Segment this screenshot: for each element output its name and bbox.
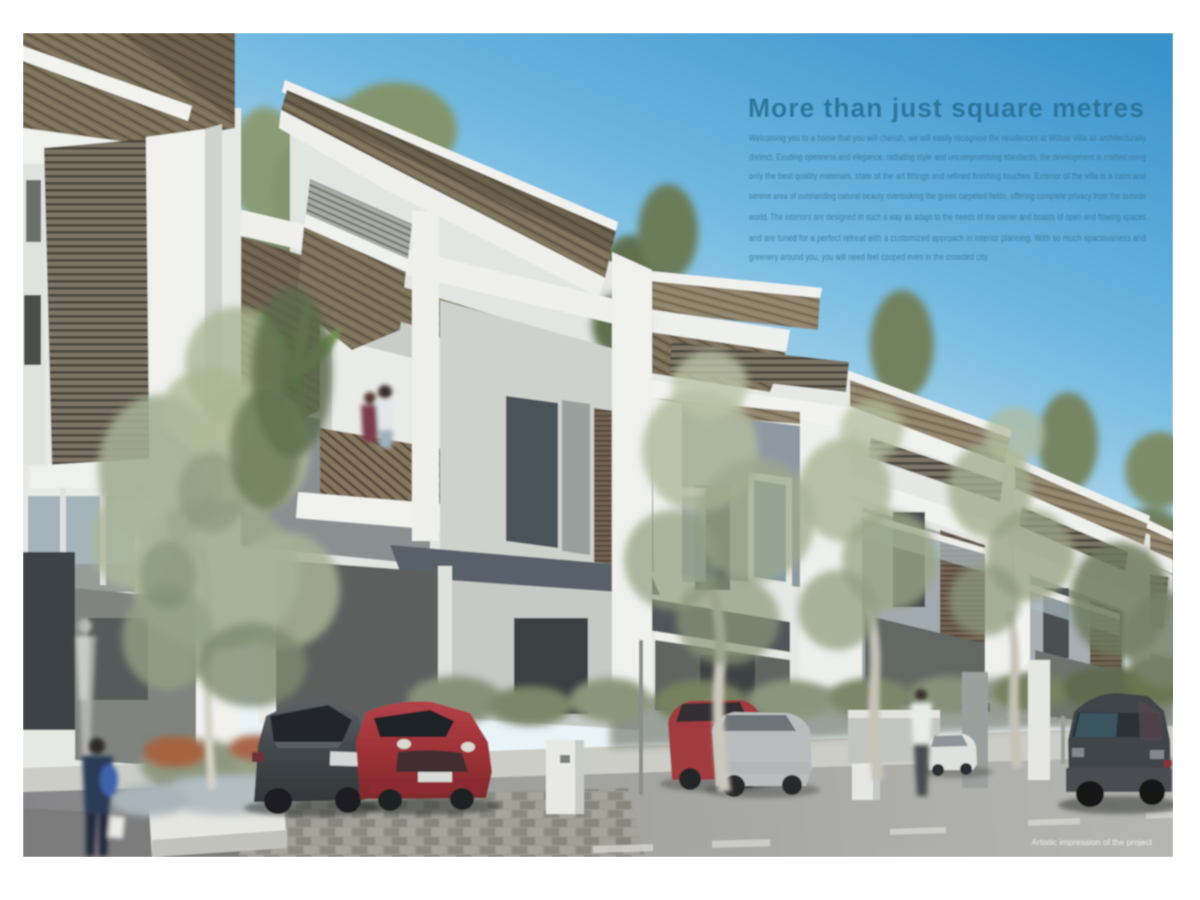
svg-text:Welcoming you to a home that y: Welcoming you to a home that you will ch… [749, 133, 1146, 143]
svg-text:only the best quality material: only the best quality materials, state o… [749, 171, 1146, 181]
svg-text:world. The interiors are desig: world. The interiors are designed in suc… [748, 212, 1146, 222]
svg-text:distinct. Exuding openness and: distinct. Exuding openness and elegance,… [749, 152, 1146, 162]
svg-text:serene area of outstanding nat: serene area of outstanding natural beaut… [749, 191, 1146, 201]
svg-text:Artistic impression of the pro: Artistic impression of the project [1032, 837, 1153, 847]
svg-text:More than just square metres: More than just square metres [748, 93, 1145, 123]
svg-text:and are tuned for a perfect re: and are tuned for a perfect retreat with… [749, 233, 1146, 243]
svg-text:greenery around you, you will: greenery around you, you will need feel … [749, 252, 989, 262]
